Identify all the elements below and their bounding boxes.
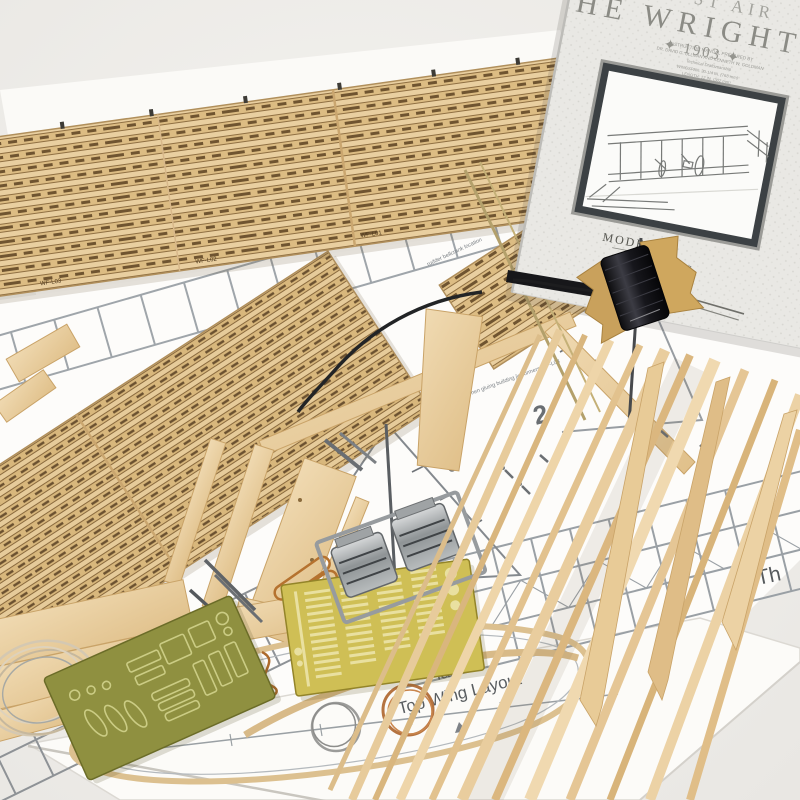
- kit-photo-stage: 3 Plan 2 Bottom Wing L Plan 1 Top Wing L…: [0, 0, 800, 800]
- wood-hole: [298, 498, 302, 502]
- kit-photo-scene: 3 Plan 2 Bottom Wing L Plan 1 Top Wing L…: [0, 0, 800, 800]
